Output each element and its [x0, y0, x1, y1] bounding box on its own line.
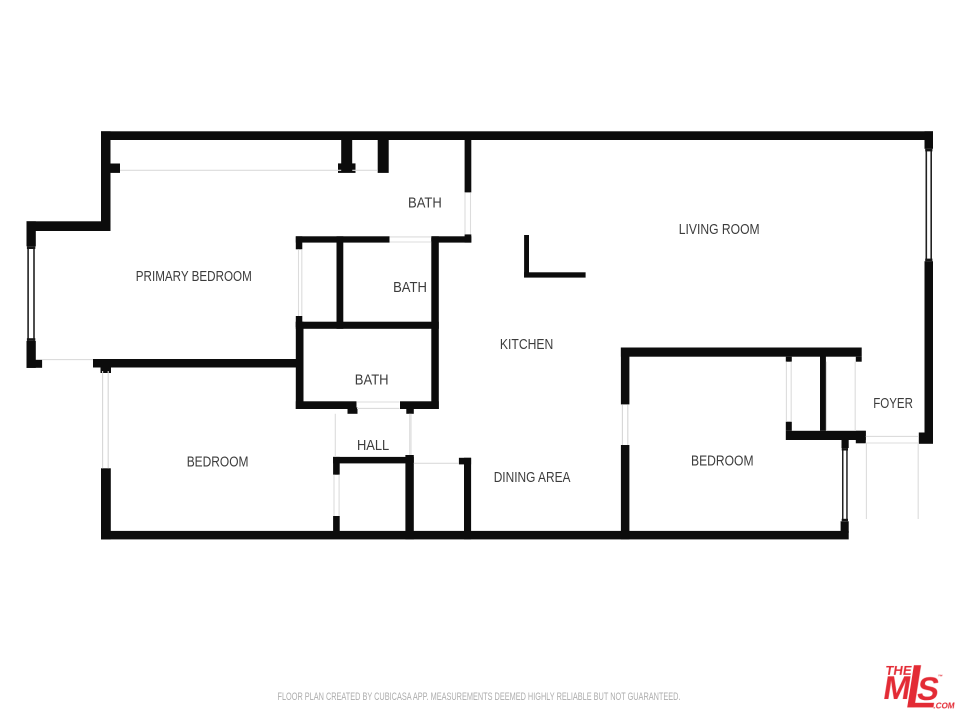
svg-text:™: ™ [937, 674, 943, 680]
svg-text:DINING AREA: DINING AREA [494, 470, 571, 486]
svg-text:BATH: BATH [408, 195, 442, 211]
svg-text:HALL: HALL [357, 438, 389, 454]
svg-text:FLOOR PLAN CREATED BY CUBICASA: FLOOR PLAN CREATED BY CUBICASA APP. MEAS… [278, 691, 681, 703]
svg-text:PRIMARY BEDROOM: PRIMARY BEDROOM [136, 269, 252, 285]
svg-text:BATH: BATH [393, 280, 427, 296]
svg-text:BATH: BATH [355, 372, 389, 388]
svg-text:KITCHEN: KITCHEN [500, 337, 553, 353]
svg-text:.COM: .COM [933, 701, 956, 710]
svg-text:BEDROOM: BEDROOM [691, 453, 754, 469]
svg-text:FOYER: FOYER [873, 396, 913, 412]
svg-text:LIVING ROOM: LIVING ROOM [679, 222, 760, 238]
svg-text:BEDROOM: BEDROOM [187, 455, 249, 471]
